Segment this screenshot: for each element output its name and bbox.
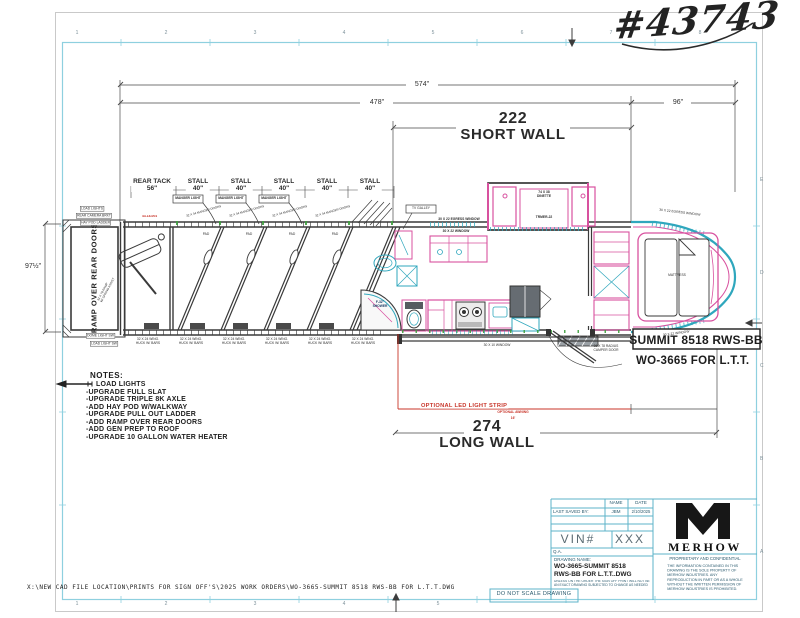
manger-light-label: MANGER LIGHT bbox=[175, 197, 200, 201]
qa-label: Q.A. bbox=[553, 550, 562, 555]
window-label: 30 X 22 WINDOW bbox=[443, 230, 470, 234]
wing-line2: HUCK W/ BARS bbox=[136, 342, 160, 345]
vin-label: VIN# bbox=[561, 533, 596, 545]
pad-label: PAD bbox=[246, 233, 253, 237]
ruler-col: 2 bbox=[165, 602, 168, 607]
manger-light-label: MANGER LIGHT bbox=[218, 197, 243, 201]
mattress-label: MATTRESS bbox=[668, 274, 686, 278]
ramp-over-rear-doors-label: RAMP OVER REAR DOORS bbox=[90, 223, 98, 333]
note-item: -UPGRADE 10 GALLON WATER HEATER bbox=[86, 434, 228, 441]
stall-label: STALL bbox=[231, 178, 251, 185]
note-item: -ADD GEN PREP TO ROOF bbox=[86, 426, 179, 433]
lq-furniture bbox=[361, 183, 630, 333]
stall-header: STALL40" bbox=[186, 178, 210, 192]
stall-header: STALL40" bbox=[315, 178, 339, 192]
ruler-col: 3 bbox=[254, 602, 257, 607]
optional-awning-size: 16' bbox=[511, 417, 515, 421]
stall-label: STALL bbox=[188, 178, 208, 185]
egress-window-label: 30 X 22 EGRESS WINDOW bbox=[438, 218, 479, 222]
ruler-row: E bbox=[760, 178, 763, 183]
saved-name: JBM bbox=[612, 510, 621, 515]
wing-line2: HUCK W/ BARS bbox=[179, 342, 203, 345]
rear-tack-label: REAR TACK bbox=[133, 178, 171, 185]
ruler-row: D bbox=[760, 271, 764, 276]
model-title: SUMMIT 8518 RWS-BB bbox=[629, 334, 762, 346]
stall-size: 40" bbox=[322, 185, 332, 192]
dim-body-length: 478" bbox=[368, 99, 386, 106]
ruler-col: 6 bbox=[521, 31, 524, 36]
stall-header: STALL40" bbox=[229, 178, 253, 192]
wing-line2: HUCK W/ BARS bbox=[351, 342, 375, 345]
drawing-name-header: DRAWING NAME: bbox=[554, 558, 591, 563]
stall-size: 40" bbox=[365, 185, 375, 192]
rear-tack-header: REAR TACK56" bbox=[131, 178, 173, 192]
wing-line2: HUCK W/ BARS bbox=[308, 342, 332, 345]
note-item: -UPGRADE FULL SLAT bbox=[86, 389, 166, 396]
ruler-col: 7 bbox=[610, 31, 613, 36]
shower-label: F-32"SHOWER bbox=[373, 301, 388, 308]
pad-label: PAD bbox=[289, 233, 296, 237]
drawing-name-line2: RWS-BB FOR L.T.T..DWG bbox=[554, 572, 632, 579]
wing-label: 32 X 24 WING.HUCK W/ BARS bbox=[351, 338, 375, 345]
notes-arrow bbox=[57, 381, 92, 387]
stall-size: 40" bbox=[193, 185, 203, 192]
conf-line: REPRODUCTION IN PART OR AS A WHOLE bbox=[667, 578, 742, 582]
ruler-row: C bbox=[760, 364, 764, 369]
note-item: -UPGRADE PULL OUT LADDER bbox=[86, 411, 196, 418]
red-part-code: 43-18-004 bbox=[142, 215, 157, 219]
drawing-linework bbox=[0, 0, 800, 618]
callout-box: HAY POD LADDER bbox=[80, 220, 111, 225]
dim-nose-length: 96" bbox=[671, 99, 685, 106]
manger-light-label: MANGER LIGHT bbox=[261, 197, 286, 201]
ruler-col: 8 bbox=[699, 31, 702, 36]
conf-line: MERHOW INDUSTRIES. ANY bbox=[667, 573, 717, 577]
scanned-cad-sheet: #43743 1 2 3 4 5 6 7 8 1 2 3 4 5 E D C B… bbox=[0, 0, 800, 618]
ruler-col: 5 bbox=[432, 31, 435, 36]
stall-header: STALL40" bbox=[358, 178, 382, 192]
optional-awning-label: OPTIONAL AWNING bbox=[497, 411, 528, 415]
wing-label: 32 X 24 WING.HUCK W/ BARS bbox=[179, 338, 203, 345]
file-path: X:\NEW CAD FILE LOCATION\PRINTS FOR SIGN… bbox=[27, 585, 455, 591]
stall-label: STALL bbox=[360, 178, 380, 185]
merhow-brand-name: MERHOW bbox=[668, 541, 742, 553]
ruler-col: 1 bbox=[76, 31, 79, 36]
work-order-title: WO-3665 FOR L.T.T. bbox=[636, 356, 749, 368]
stall-label: STALL bbox=[274, 178, 294, 185]
tv-galley-label: TV GALLEY bbox=[412, 207, 430, 211]
ruler-col: 4 bbox=[343, 602, 346, 607]
callout-box: REAR CAMERA BRKT bbox=[76, 213, 112, 218]
stall-header: STALL40" bbox=[272, 178, 296, 192]
callout-box: LOAD LIGHTS bbox=[80, 206, 104, 211]
dinette-label: 74 X 38DINETTE bbox=[537, 191, 551, 198]
ruler-row: A bbox=[760, 550, 763, 555]
name-header: NAME bbox=[609, 501, 622, 506]
vin-value: XXX bbox=[615, 533, 645, 545]
dim-height: 97½" bbox=[23, 263, 43, 270]
wing-line2: HUCK W/ BARS bbox=[222, 342, 246, 345]
wing-line2: HUCK W/ BARS bbox=[265, 342, 289, 345]
long-wall-label: LONG WALL bbox=[439, 435, 534, 450]
note-item: -UPGRADE TRIPLE 8K AXLE bbox=[86, 396, 186, 403]
sign-off-disclaimer: UNLESS ON THE ORDER THE SIGN OFF PRINT W… bbox=[554, 580, 651, 587]
ruler-row: B bbox=[760, 457, 763, 462]
camper-door-label: 36 X 78 RADIUSCAMPER DOOR bbox=[594, 345, 619, 352]
kitchen-window-label: 30 X 10 WINDOW bbox=[484, 344, 511, 348]
wing-label: 32 X 24 WING.HUCK W/ BARS bbox=[308, 338, 332, 345]
confidential-text: THE INFORMATION CONTAINED IN THISDRAWING… bbox=[667, 564, 742, 592]
ruler-col: 5 bbox=[437, 602, 440, 607]
last-saved-by-label: LAST SAVED BY: bbox=[553, 510, 589, 515]
date-header: DATE bbox=[635, 501, 647, 506]
notes-heading: NOTES: bbox=[90, 372, 123, 380]
long-wall-value: 274 bbox=[473, 419, 502, 435]
dinette-word: DINETTE bbox=[537, 195, 551, 198]
drawing-name-line1: WO-3665-SUMMIT 8518 bbox=[554, 564, 626, 571]
camper-door-word: CAMPER DOOR bbox=[594, 349, 619, 352]
ruler-col: 4 bbox=[343, 31, 346, 36]
stall-size: 40" bbox=[279, 185, 289, 192]
do-not-scale-label: DO NOT SCALE DRAWING bbox=[497, 592, 572, 598]
conf-line: THE INFORMATION CONTAINED IN THIS bbox=[667, 564, 738, 568]
callout-box: LOAD LIGHT SW bbox=[90, 341, 118, 346]
wing-label: 32 X 24 WING.HUCK W/ BARS bbox=[265, 338, 289, 345]
conf-line: WITHOUT THE WRITTEN PERMISSION OF bbox=[667, 583, 741, 587]
note-item: -ADD RAMP OVER REAR DOORS bbox=[86, 419, 202, 426]
optional-led-strip-label: OPTIONAL LED LIGHT STRIP bbox=[420, 403, 508, 409]
wing-label: 32 X 24 WING.HUCK W/ BARS bbox=[222, 338, 246, 345]
shower-word: SHOWER bbox=[373, 305, 388, 308]
wing-label: 32 X 24 WING.HUCK W/ BARS bbox=[136, 338, 160, 345]
pad-label: PAD bbox=[203, 233, 210, 237]
pad-label: PAD bbox=[332, 233, 339, 237]
conf-line: DRAWING IS THE SOLE PROPERTY OF bbox=[667, 569, 736, 573]
merhow-logo-icon bbox=[676, 503, 730, 539]
saved-date: 2/10/2025 bbox=[632, 510, 651, 514]
stall-size: 40" bbox=[236, 185, 246, 192]
callout-box: DOME LIGHT SW bbox=[86, 333, 115, 338]
conf-line: MERHOW INDUSTRIES IS PROHIBITED. bbox=[667, 587, 737, 591]
note-item: -ADD HAY POD W/WALKWAY bbox=[86, 404, 187, 411]
note-item: LOAD LIGHTS bbox=[96, 381, 146, 388]
confidential-title: PROPRIETARY AND CONFIDENTIAL bbox=[669, 557, 740, 561]
rear-tack-size: 56" bbox=[147, 185, 157, 192]
ruler-col: 1 bbox=[76, 602, 79, 607]
ruler-col: 3 bbox=[254, 31, 257, 36]
dim-overall-length: 574" bbox=[413, 81, 431, 88]
dinette-model-label: TRMER-22 bbox=[536, 216, 553, 220]
stall-label: STALL bbox=[317, 178, 337, 185]
ruler-col: 2 bbox=[165, 31, 168, 36]
short-wall-value: 222 bbox=[499, 111, 528, 127]
short-wall-label: SHORT WALL bbox=[460, 127, 565, 142]
